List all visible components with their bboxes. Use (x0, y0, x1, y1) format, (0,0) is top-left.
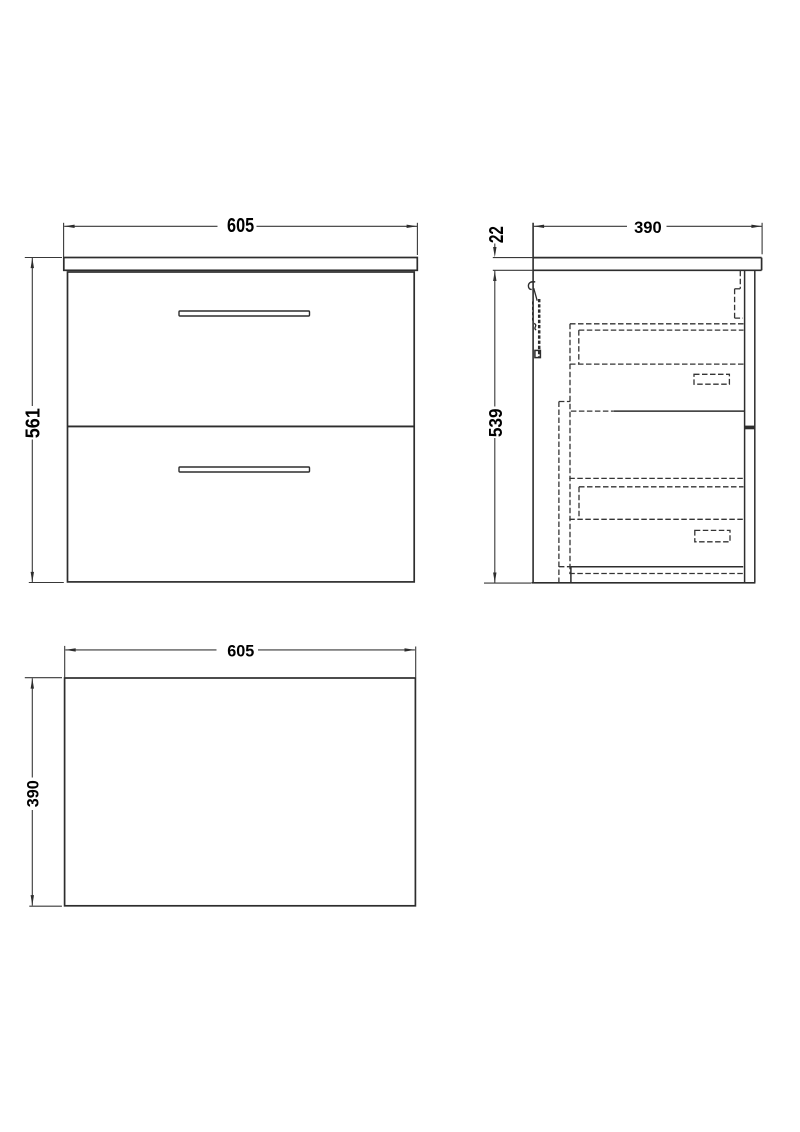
svg-text:605: 605 (227, 213, 254, 236)
svg-text:605: 605 (227, 642, 254, 660)
svg-text:539: 539 (485, 408, 506, 437)
svg-text:22: 22 (485, 226, 508, 243)
svg-text:390: 390 (24, 780, 42, 807)
svg-text:561: 561 (22, 408, 44, 438)
svg-text:390: 390 (634, 219, 662, 237)
